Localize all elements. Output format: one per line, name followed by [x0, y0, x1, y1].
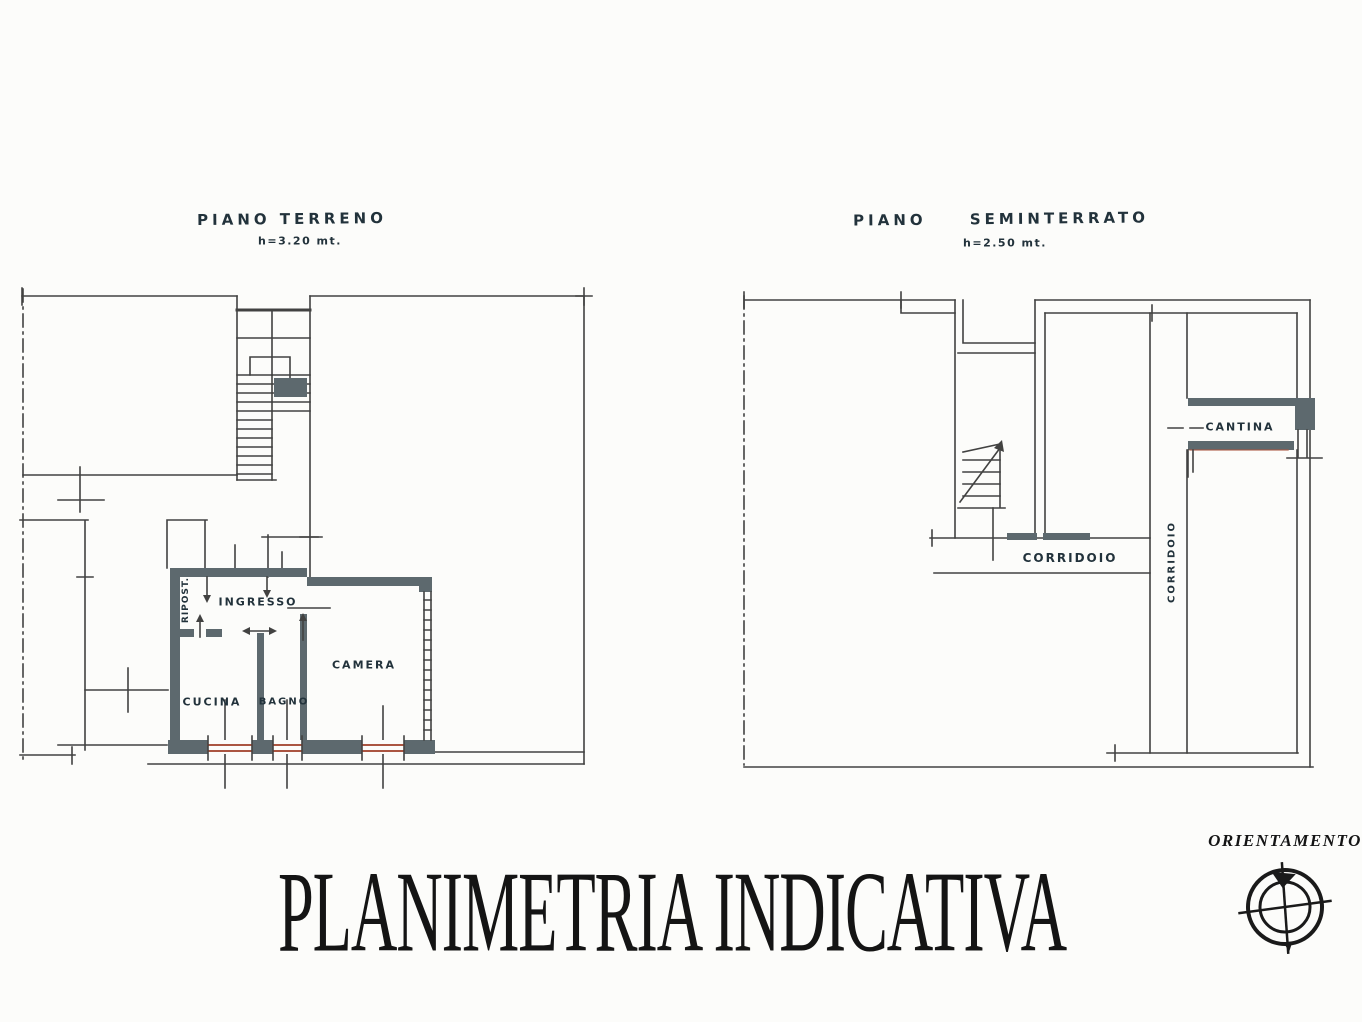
staircase: [955, 300, 1035, 560]
room-label-ripostiglio: RIPOST.: [181, 577, 191, 623]
basement-plan-height-note: h=2.50 mt.: [963, 237, 1047, 250]
room-label-corridoio: CORRIDOIO: [1023, 551, 1118, 565]
room-label-corridoio-vertical: CORRIDOIO: [1167, 521, 1178, 603]
page-title: PLANIMETRIA INDICATIVA: [0, 855, 1362, 970]
basement-plan-title: PIANO SEMINTERRATO: [853, 208, 1149, 229]
room-label-bagno: BAGNO: [259, 697, 309, 708]
room-label-ingresso: INGRESSO: [218, 596, 297, 609]
ground-plan-height-note: h=3.20 mt.: [258, 235, 342, 248]
room-label-cantina: CANTINA: [1205, 421, 1274, 434]
cantina-walls: [1168, 398, 1322, 477]
camera-right-wall-hatch: [424, 592, 431, 740]
room-label-cucina: CUCINA: [183, 696, 242, 709]
basement-floor-plan: [744, 292, 1322, 767]
room-label-camera: CAMERA: [332, 659, 396, 672]
orientation-label: ORIENTAMENTO: [1208, 831, 1362, 851]
scanned-floor-plan-page: PIANO TERRENO h=3.20 mt. PIANO SEMINTERR…: [0, 0, 1362, 1022]
window: [208, 736, 252, 760]
site-boundary-lines: [744, 292, 1313, 767]
ground-plan-title: PIANO TERRENO: [197, 209, 387, 229]
corridor-walls: [930, 313, 1187, 753]
ground-floor-plan: [20, 288, 592, 788]
staircase: [237, 296, 318, 577]
